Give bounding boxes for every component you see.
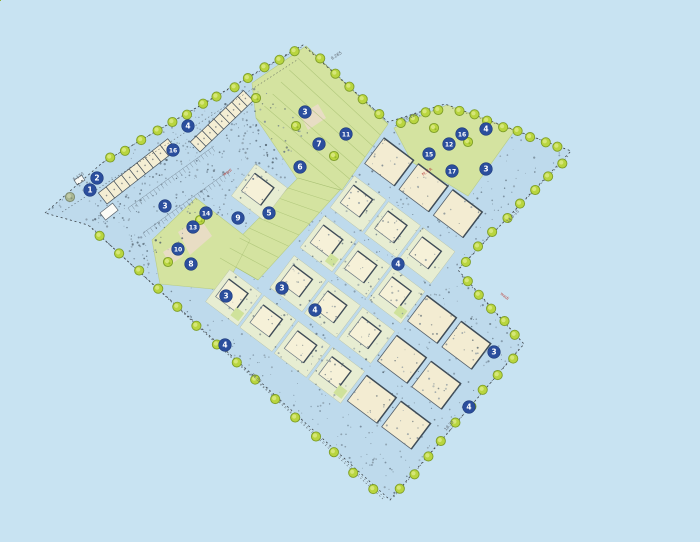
texture-dot <box>197 127 199 129</box>
texture-dot <box>175 206 177 208</box>
texture-dot <box>256 176 258 178</box>
texture-dot <box>399 451 401 453</box>
texture-dot <box>119 213 120 214</box>
texture-dot <box>190 300 191 301</box>
texture-dot <box>380 454 381 455</box>
texture-dot <box>322 250 323 251</box>
texture-dot <box>246 148 248 150</box>
texture-dot <box>431 408 432 409</box>
texture-dot <box>243 175 244 176</box>
texture-dot <box>333 396 334 397</box>
badge-3[interactable]: 3 <box>488 346 501 359</box>
texture-dot <box>131 241 133 243</box>
texture-dot <box>417 437 419 439</box>
texture-dot <box>236 123 237 124</box>
texture-dot <box>400 420 401 421</box>
texture-dot <box>144 264 145 265</box>
texture-dot <box>365 195 366 196</box>
badge-4[interactable]: 4 <box>182 120 195 133</box>
texture-dot <box>257 362 258 363</box>
texture-dot <box>370 412 371 413</box>
texture-dot <box>344 446 346 448</box>
texture-dot <box>438 388 440 390</box>
texture-dot <box>402 190 404 192</box>
badge-4[interactable]: 4 <box>463 401 476 414</box>
texture-dot <box>428 378 430 380</box>
texture-dot <box>164 220 165 221</box>
texture-dot <box>127 197 129 199</box>
texture-dot <box>126 227 127 228</box>
texture-dot <box>402 207 403 208</box>
texture-dot <box>337 279 338 280</box>
texture-dot <box>553 162 554 163</box>
texture-dot <box>266 179 268 181</box>
texture-dot <box>339 236 341 238</box>
texture-dot <box>399 236 400 237</box>
texture-dot <box>286 363 287 364</box>
texture-dot <box>188 208 189 209</box>
texture-dot <box>410 188 411 189</box>
texture-dot <box>163 131 165 133</box>
badge-4[interactable]: 4 <box>480 123 493 136</box>
texture-dot <box>431 324 433 326</box>
badge-3[interactable]: 3 <box>480 163 493 176</box>
texture-dot <box>259 333 261 335</box>
badge-3[interactable]: 3 <box>220 290 233 303</box>
texture-dot <box>211 146 212 147</box>
texture-dot <box>379 251 380 252</box>
texture-dot <box>482 240 483 241</box>
texture-dot <box>403 410 404 411</box>
texture-dot <box>331 259 332 260</box>
texture-dot <box>283 151 285 153</box>
texture-dot <box>344 261 346 263</box>
texture-dot <box>417 427 418 428</box>
tree-icon <box>291 121 300 130</box>
texture-dot <box>213 169 215 171</box>
badge-1[interactable]: 1 <box>84 184 97 197</box>
texture-dot <box>137 242 139 244</box>
texture-dot <box>505 179 507 181</box>
texture-dot <box>354 391 356 393</box>
texture-dot <box>351 241 353 243</box>
texture-dot <box>339 241 340 242</box>
texture-dot <box>171 291 173 293</box>
texture-dot <box>188 141 190 143</box>
badge-number: 4 <box>483 124 488 133</box>
badge-number: 14 <box>202 210 210 217</box>
texture-dot <box>419 293 420 294</box>
texture-dot <box>310 352 312 354</box>
texture-dot <box>144 183 146 185</box>
texture-dot <box>159 174 161 176</box>
texture-dot <box>377 224 379 226</box>
texture-dot <box>254 279 255 280</box>
badge-6[interactable]: 6 <box>294 161 307 174</box>
texture-dot <box>401 274 403 276</box>
badge-number: 3 <box>491 347 496 356</box>
texture-dot <box>398 205 399 206</box>
texture-dot <box>364 240 365 241</box>
texture-dot <box>464 201 466 203</box>
texture-dot <box>472 359 474 361</box>
texture-dot <box>138 211 140 213</box>
texture-dot <box>282 164 283 165</box>
texture-dot <box>130 238 131 239</box>
tree-icon <box>0 0 299 56</box>
badge-17[interactable]: 17 <box>446 165 459 178</box>
texture-dot <box>176 197 178 199</box>
texture-dot <box>320 248 321 249</box>
texture-dot <box>434 266 436 268</box>
badge-number: 16 <box>458 131 466 138</box>
texture-dot <box>252 124 253 125</box>
texture-dot <box>221 214 223 216</box>
texture-dot <box>341 365 342 366</box>
texture-dot <box>368 290 369 291</box>
texture-dot <box>119 222 120 223</box>
texture-dot <box>367 322 369 324</box>
texture-dot <box>426 347 427 348</box>
texture-dot <box>416 412 418 414</box>
texture-dot <box>429 342 431 344</box>
badge-number: 4 <box>222 340 227 349</box>
badge-number: 16 <box>169 147 177 154</box>
texture-dot <box>360 344 362 346</box>
texture-dot <box>207 163 209 165</box>
texture-dot <box>374 419 375 420</box>
texture-dot <box>405 349 406 350</box>
texture-dot <box>244 152 246 154</box>
texture-dot <box>321 359 323 361</box>
texture-dot <box>372 459 374 461</box>
texture-dot <box>193 147 194 148</box>
texture-dot <box>283 314 285 316</box>
texture-dot <box>223 203 224 204</box>
texture-dot <box>146 256 147 257</box>
tree-icon <box>0 0 115 162</box>
texture-dot <box>348 197 350 199</box>
badge-number: 9 <box>235 213 240 222</box>
badge-8[interactable]: 8 <box>185 258 198 271</box>
texture-dot <box>194 212 195 213</box>
texture-dot <box>449 288 450 289</box>
texture-dot <box>483 365 484 366</box>
texture-dot <box>244 113 245 114</box>
texture-dot <box>155 239 157 241</box>
texture-dot <box>361 368 363 370</box>
texture-dot <box>308 230 309 231</box>
texture-dot <box>248 364 250 366</box>
texture-dot <box>436 333 438 335</box>
texture-dot <box>350 427 351 428</box>
texture-dot <box>494 210 495 211</box>
texture-dot <box>249 126 251 128</box>
texture-dot <box>379 325 381 327</box>
texture-dot <box>377 215 379 217</box>
texture-dot <box>199 129 200 130</box>
badge-4[interactable]: 4 <box>392 258 405 271</box>
texture-dot <box>501 359 502 360</box>
texture-dot <box>476 197 478 199</box>
texture-dot <box>222 320 223 321</box>
texture-dot <box>148 272 150 274</box>
texture-dot <box>384 140 385 141</box>
texture-dot <box>223 150 225 152</box>
badge-9[interactable]: 9 <box>232 212 245 225</box>
texture-dot <box>366 462 368 464</box>
texture-dot <box>255 140 257 142</box>
texture-dot <box>377 226 378 227</box>
texture-dot <box>390 160 391 161</box>
texture-dot <box>249 209 250 210</box>
texture-dot <box>160 237 161 238</box>
texture-dot <box>230 129 232 131</box>
texture-dot <box>234 343 235 344</box>
texture-dot <box>98 222 99 223</box>
texture-dot <box>419 323 421 325</box>
texture-dot <box>335 318 337 320</box>
texture-dot <box>449 359 451 361</box>
texture-dot <box>365 259 366 260</box>
texture-dot <box>402 397 403 398</box>
texture-dot <box>387 255 388 256</box>
texture-dot <box>279 392 280 393</box>
texture-dot <box>224 103 226 105</box>
texture-dot <box>387 337 389 339</box>
texture-dot <box>246 187 247 188</box>
badge-7[interactable]: 7 <box>313 138 326 151</box>
texture-dot <box>372 163 373 164</box>
texture-dot <box>312 419 313 420</box>
texture-dot <box>246 299 247 300</box>
texture-dot <box>262 375 263 376</box>
badge-16[interactable]: 16 <box>456 128 469 141</box>
texture-dot <box>325 215 326 216</box>
badge-16[interactable]: 16 <box>167 144 180 157</box>
badge-4[interactable]: 4 <box>219 339 232 352</box>
texture-dot <box>176 178 177 179</box>
texture-dot <box>460 384 462 386</box>
texture-dot <box>366 312 368 314</box>
badge-number: 17 <box>448 168 456 175</box>
texture-dot <box>212 198 213 199</box>
texture-dot <box>457 301 458 302</box>
texture-dot <box>263 154 265 156</box>
texture-dot <box>143 258 145 260</box>
texture-dot <box>470 206 472 208</box>
texture-dot <box>259 109 261 111</box>
badge-number: 15 <box>425 151 433 158</box>
texture-dot <box>441 418 442 419</box>
texture-dot <box>394 237 395 238</box>
texture-dot <box>135 200 136 201</box>
texture-dot <box>293 395 294 396</box>
tree-icon <box>0 0 208 108</box>
texture-dot <box>371 152 373 154</box>
annotation-label: wadi <box>499 291 510 301</box>
badge-15[interactable]: 15 <box>423 148 436 161</box>
texture-dot <box>292 117 293 118</box>
texture-dot <box>203 183 204 184</box>
texture-dot <box>181 237 183 239</box>
texture-dot <box>106 221 107 222</box>
texture-dot <box>416 230 417 231</box>
texture-dot <box>468 381 470 383</box>
texture-dot <box>138 236 140 238</box>
tree-icon <box>0 0 284 64</box>
texture-dot <box>228 307 230 309</box>
texture-dot <box>396 299 398 301</box>
texture-dot <box>376 395 378 397</box>
texture-dot <box>103 221 104 222</box>
texture-dot <box>370 285 372 287</box>
texture-dot <box>385 462 387 464</box>
texture-dot <box>414 402 415 403</box>
texture-dot <box>380 420 382 422</box>
texture-dot <box>326 312 327 313</box>
texture-dot <box>253 88 255 90</box>
texture-dot <box>232 302 233 303</box>
texture-dot <box>208 120 210 122</box>
texture-dot <box>454 335 455 336</box>
texture-dot <box>279 324 280 325</box>
badge-number: 3 <box>302 107 307 116</box>
texture-dot <box>336 444 337 445</box>
texture-dot <box>328 378 329 379</box>
texture-dot <box>262 276 263 277</box>
texture-dot <box>472 350 473 351</box>
texture-dot <box>305 245 306 246</box>
texture-dot <box>142 184 143 185</box>
texture-dot <box>252 132 253 133</box>
texture-dot <box>253 315 255 317</box>
texture-dot <box>131 158 132 159</box>
badge-10[interactable]: 10 <box>172 243 185 256</box>
texture-dot <box>293 404 295 406</box>
badge-number: 4 <box>466 402 471 411</box>
texture-dot <box>219 209 220 210</box>
texture-dot <box>319 389 321 391</box>
texture-dot <box>312 255 314 257</box>
texture-dot <box>239 151 241 153</box>
badge-14[interactable]: 14 <box>200 207 213 220</box>
texture-dot <box>140 189 142 191</box>
badge-3[interactable]: 3 <box>299 106 312 119</box>
badge-number: 3 <box>279 283 284 292</box>
texture-dot <box>384 486 386 488</box>
texture-dot <box>79 185 81 187</box>
texture-dot <box>421 436 423 438</box>
texture-dot <box>437 219 438 220</box>
texture-dot <box>195 117 196 118</box>
badge-3[interactable]: 3 <box>159 200 172 213</box>
texture-dot <box>294 264 296 266</box>
texture-dot <box>242 138 244 140</box>
texture-dot <box>187 152 189 154</box>
texture-dot <box>241 159 242 160</box>
texture-dot <box>221 156 222 157</box>
texture-dot <box>323 322 325 324</box>
texture-dot <box>310 324 312 326</box>
badge-11[interactable]: 11 <box>340 128 353 141</box>
badge-13[interactable]: 13 <box>187 221 200 234</box>
texture-dot <box>365 437 366 438</box>
texture-dot <box>153 251 154 252</box>
texture-dot <box>377 422 379 424</box>
texture-dot <box>518 344 520 346</box>
texture-dot <box>386 424 388 426</box>
texture-dot <box>187 311 188 312</box>
texture-dot <box>242 148 244 150</box>
texture-dot <box>159 242 161 244</box>
badge-2[interactable]: 2 <box>91 172 104 185</box>
texture-dot <box>403 371 405 373</box>
texture-dot <box>525 173 526 174</box>
texture-dot <box>317 424 318 425</box>
texture-dot <box>283 127 285 129</box>
texture-dot <box>154 249 156 251</box>
texture-dot <box>164 227 165 228</box>
texture-dot <box>85 218 87 220</box>
texture-dot <box>378 278 380 280</box>
texture-dot <box>322 334 324 336</box>
texture-dot <box>340 453 341 454</box>
texture-dot <box>176 160 178 162</box>
texture-dot <box>402 313 404 315</box>
badge-3[interactable]: 3 <box>276 282 289 295</box>
texture-dot <box>86 181 88 183</box>
texture-dot <box>241 142 243 144</box>
texture-dot <box>350 192 352 194</box>
texture-dot <box>98 217 99 218</box>
texture-dot <box>383 458 384 459</box>
tree-icon <box>0 0 162 135</box>
texture-dot <box>425 298 427 300</box>
texture-dot <box>501 207 502 208</box>
texture-dot <box>327 418 328 419</box>
texture-dot <box>139 245 141 247</box>
badge-12[interactable]: 12 <box>443 138 456 151</box>
badge-5[interactable]: 5 <box>263 207 276 220</box>
texture-dot <box>133 153 134 154</box>
texture-dot <box>369 410 370 411</box>
texture-dot <box>481 191 483 193</box>
texture-dot <box>124 226 125 227</box>
badge-4[interactable]: 4 <box>309 304 322 317</box>
texture-dot <box>459 402 460 403</box>
texture-dot <box>209 330 210 331</box>
texture-dot <box>168 249 169 250</box>
texture-dot <box>142 243 144 245</box>
texture-dot <box>407 433 409 435</box>
badge-number: 1 <box>87 185 92 194</box>
texture-dot <box>303 279 305 281</box>
texture-dot <box>398 333 399 334</box>
texture-dot <box>367 346 369 348</box>
texture-dot <box>443 213 445 215</box>
texture-dot <box>418 187 419 188</box>
texture-dot <box>278 352 280 354</box>
texture-dot <box>222 153 223 154</box>
dimension-label: 9.265 <box>330 50 343 61</box>
texture-dot <box>393 492 395 494</box>
texture-dot <box>464 331 465 332</box>
site-plan-canvas: 28.13514.8-1524.5218.359.2655.170M.V.Rwa… <box>0 0 700 542</box>
texture-dot <box>480 306 481 307</box>
texture-dot <box>203 198 205 200</box>
texture-dot <box>366 454 367 455</box>
